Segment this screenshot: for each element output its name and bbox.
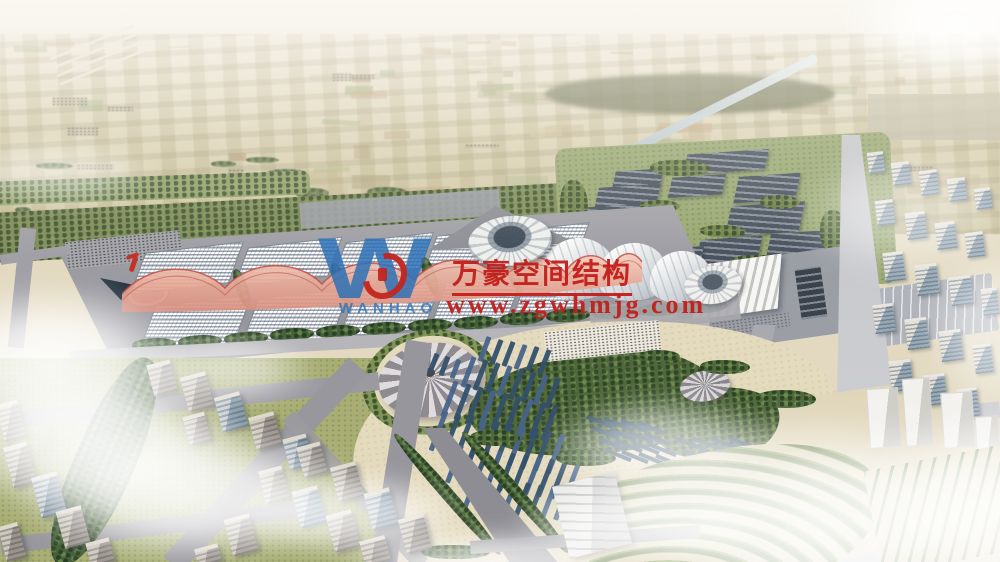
tree-cluster <box>700 225 746 237</box>
city-building <box>948 275 973 306</box>
field-patch <box>849 75 860 83</box>
city-building <box>965 231 986 258</box>
park-trees <box>700 360 750 374</box>
distant-village <box>67 127 97 137</box>
city-building <box>882 251 905 282</box>
city-building <box>980 287 999 316</box>
distant-village <box>77 164 114 171</box>
tree-cluster <box>650 160 710 176</box>
field-patch <box>467 41 491 44</box>
aerial-rendering-scene: W WANHAO 万豪空间结构 www.zgwhmjg.com <box>0 0 1000 562</box>
distant-village <box>465 144 499 149</box>
city-building <box>974 187 992 210</box>
field-patch <box>501 41 516 47</box>
warehouse-block <box>668 174 726 198</box>
distant-village <box>107 106 133 112</box>
field-patch <box>380 69 395 77</box>
field-patch <box>463 59 492 66</box>
field-patch <box>423 85 451 90</box>
city-building <box>904 317 930 350</box>
field-patch <box>353 124 365 127</box>
distant-trees <box>211 161 236 166</box>
distant-trees <box>36 163 73 169</box>
field-patch <box>228 153 245 162</box>
city-building <box>947 177 968 202</box>
city-building <box>867 151 885 174</box>
field-patch <box>530 126 563 137</box>
expo-wave-roof <box>122 226 642 318</box>
distant-village <box>332 73 352 80</box>
field-patch <box>14 45 47 52</box>
field-patch <box>354 145 370 159</box>
park-trees <box>556 450 616 466</box>
white-tower <box>940 391 976 449</box>
field-patch <box>423 47 452 54</box>
field-patch <box>167 46 190 49</box>
distant-trees <box>246 157 279 163</box>
field-patch <box>902 54 926 59</box>
city-building <box>934 221 957 250</box>
field-patch <box>966 40 986 47</box>
field-patch <box>670 56 700 65</box>
field-patch <box>384 131 410 140</box>
white-tower <box>866 387 902 449</box>
city-building <box>919 169 940 196</box>
distant-town <box>868 94 1000 140</box>
field-patch <box>895 77 905 85</box>
city-building <box>938 329 964 362</box>
park-trees <box>640 350 680 362</box>
field-patch <box>43 42 75 47</box>
field-patch <box>611 52 633 55</box>
park-trees <box>756 390 816 408</box>
city-building <box>872 303 895 334</box>
field-patch <box>466 70 480 72</box>
dark-woods <box>545 74 835 114</box>
field-patch <box>756 56 774 60</box>
field-patch <box>503 71 514 77</box>
field-patch <box>477 81 494 90</box>
distant-village <box>351 74 375 79</box>
white-tower <box>902 377 935 447</box>
city-building <box>904 211 927 240</box>
field-patch <box>561 42 580 44</box>
city-building <box>891 161 912 186</box>
city-building <box>972 343 993 374</box>
city-building <box>914 263 940 296</box>
city-building <box>875 199 896 226</box>
tree-cluster <box>760 195 800 209</box>
distant-village <box>52 97 87 106</box>
field-patch <box>351 90 387 99</box>
field-patch <box>865 60 904 62</box>
